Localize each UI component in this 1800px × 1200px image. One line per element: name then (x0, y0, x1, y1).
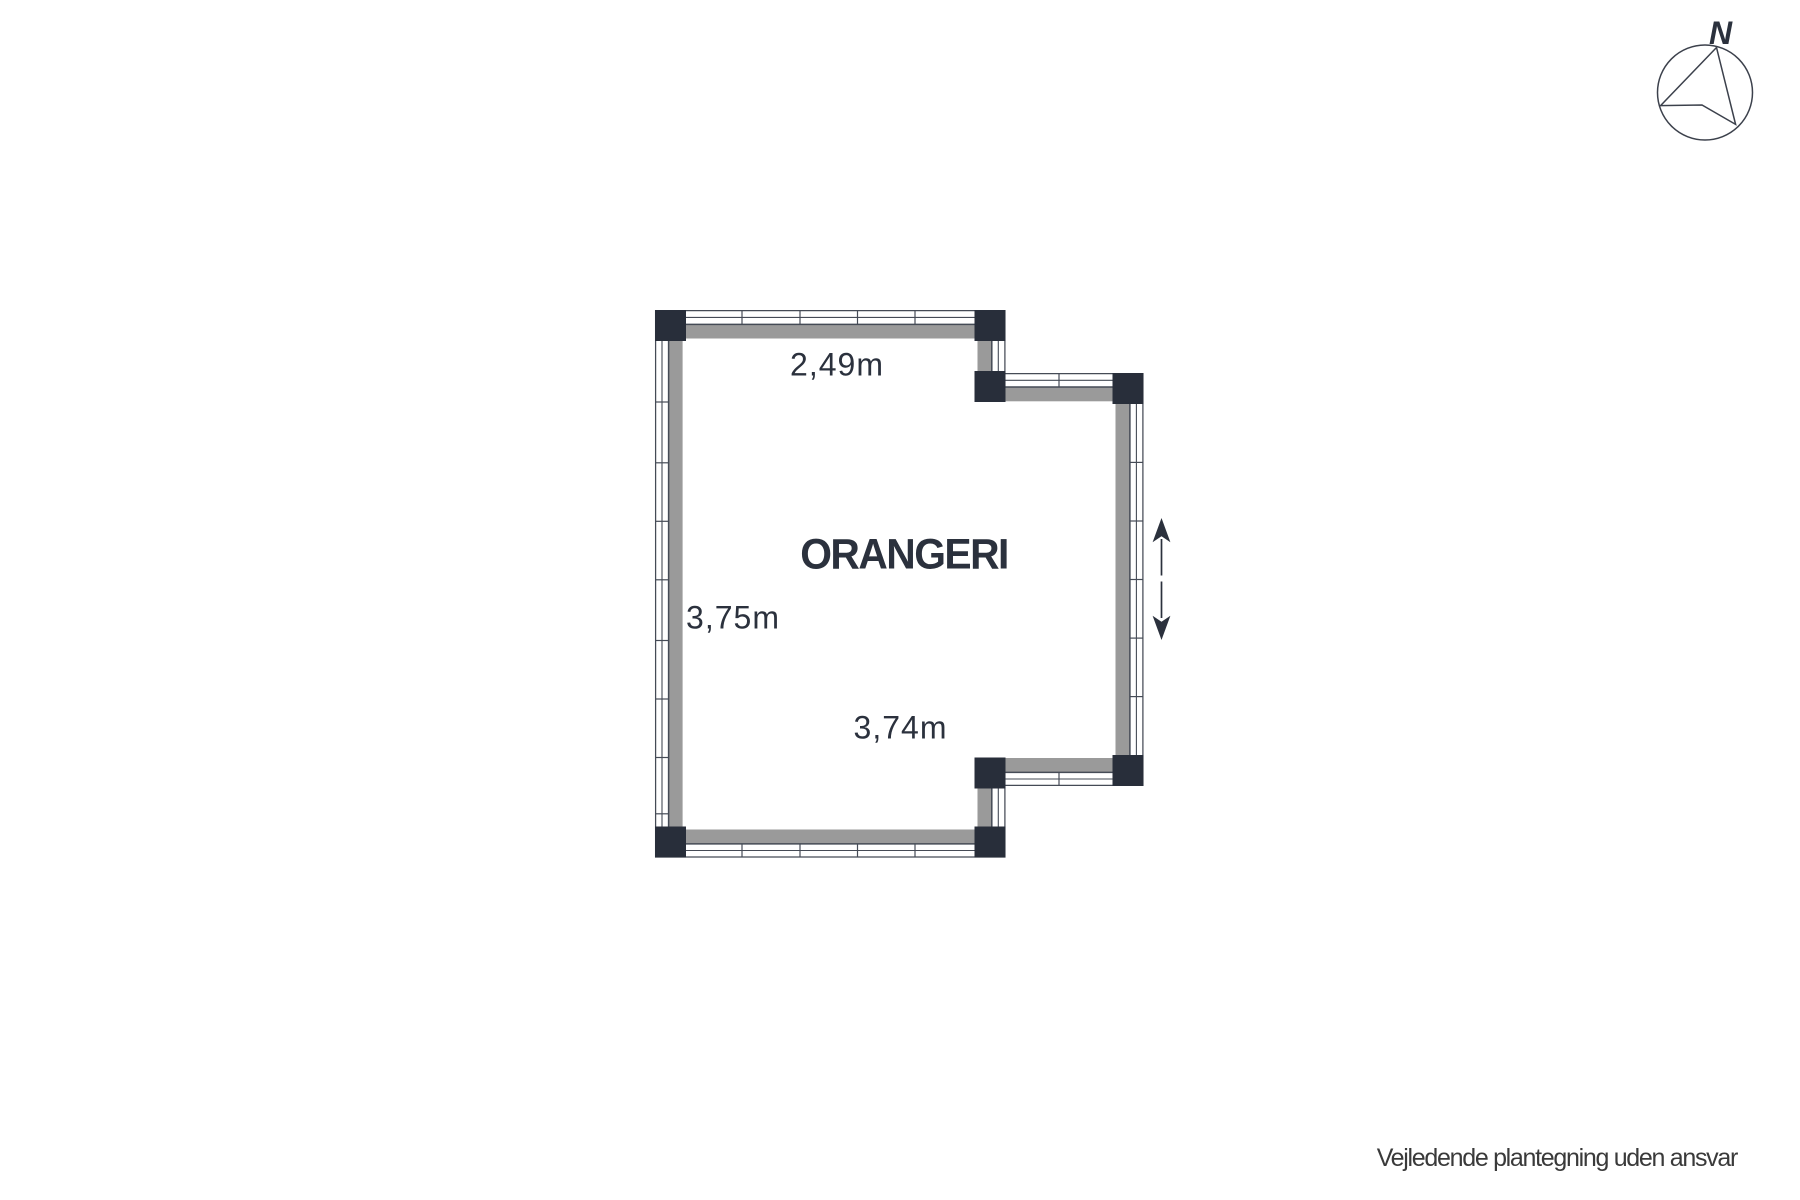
svg-text:ORANGERI: ORANGERI (800, 530, 1008, 578)
svg-text:2,49m: 2,49m (790, 347, 884, 383)
svg-text:3,75m: 3,75m (686, 600, 780, 636)
svg-text:Vejledende plantegning uden an: Vejledende plantegning uden ansvar (1377, 1144, 1738, 1172)
svg-text:N: N (1709, 15, 1733, 51)
svg-text:3,74m: 3,74m (854, 709, 948, 745)
